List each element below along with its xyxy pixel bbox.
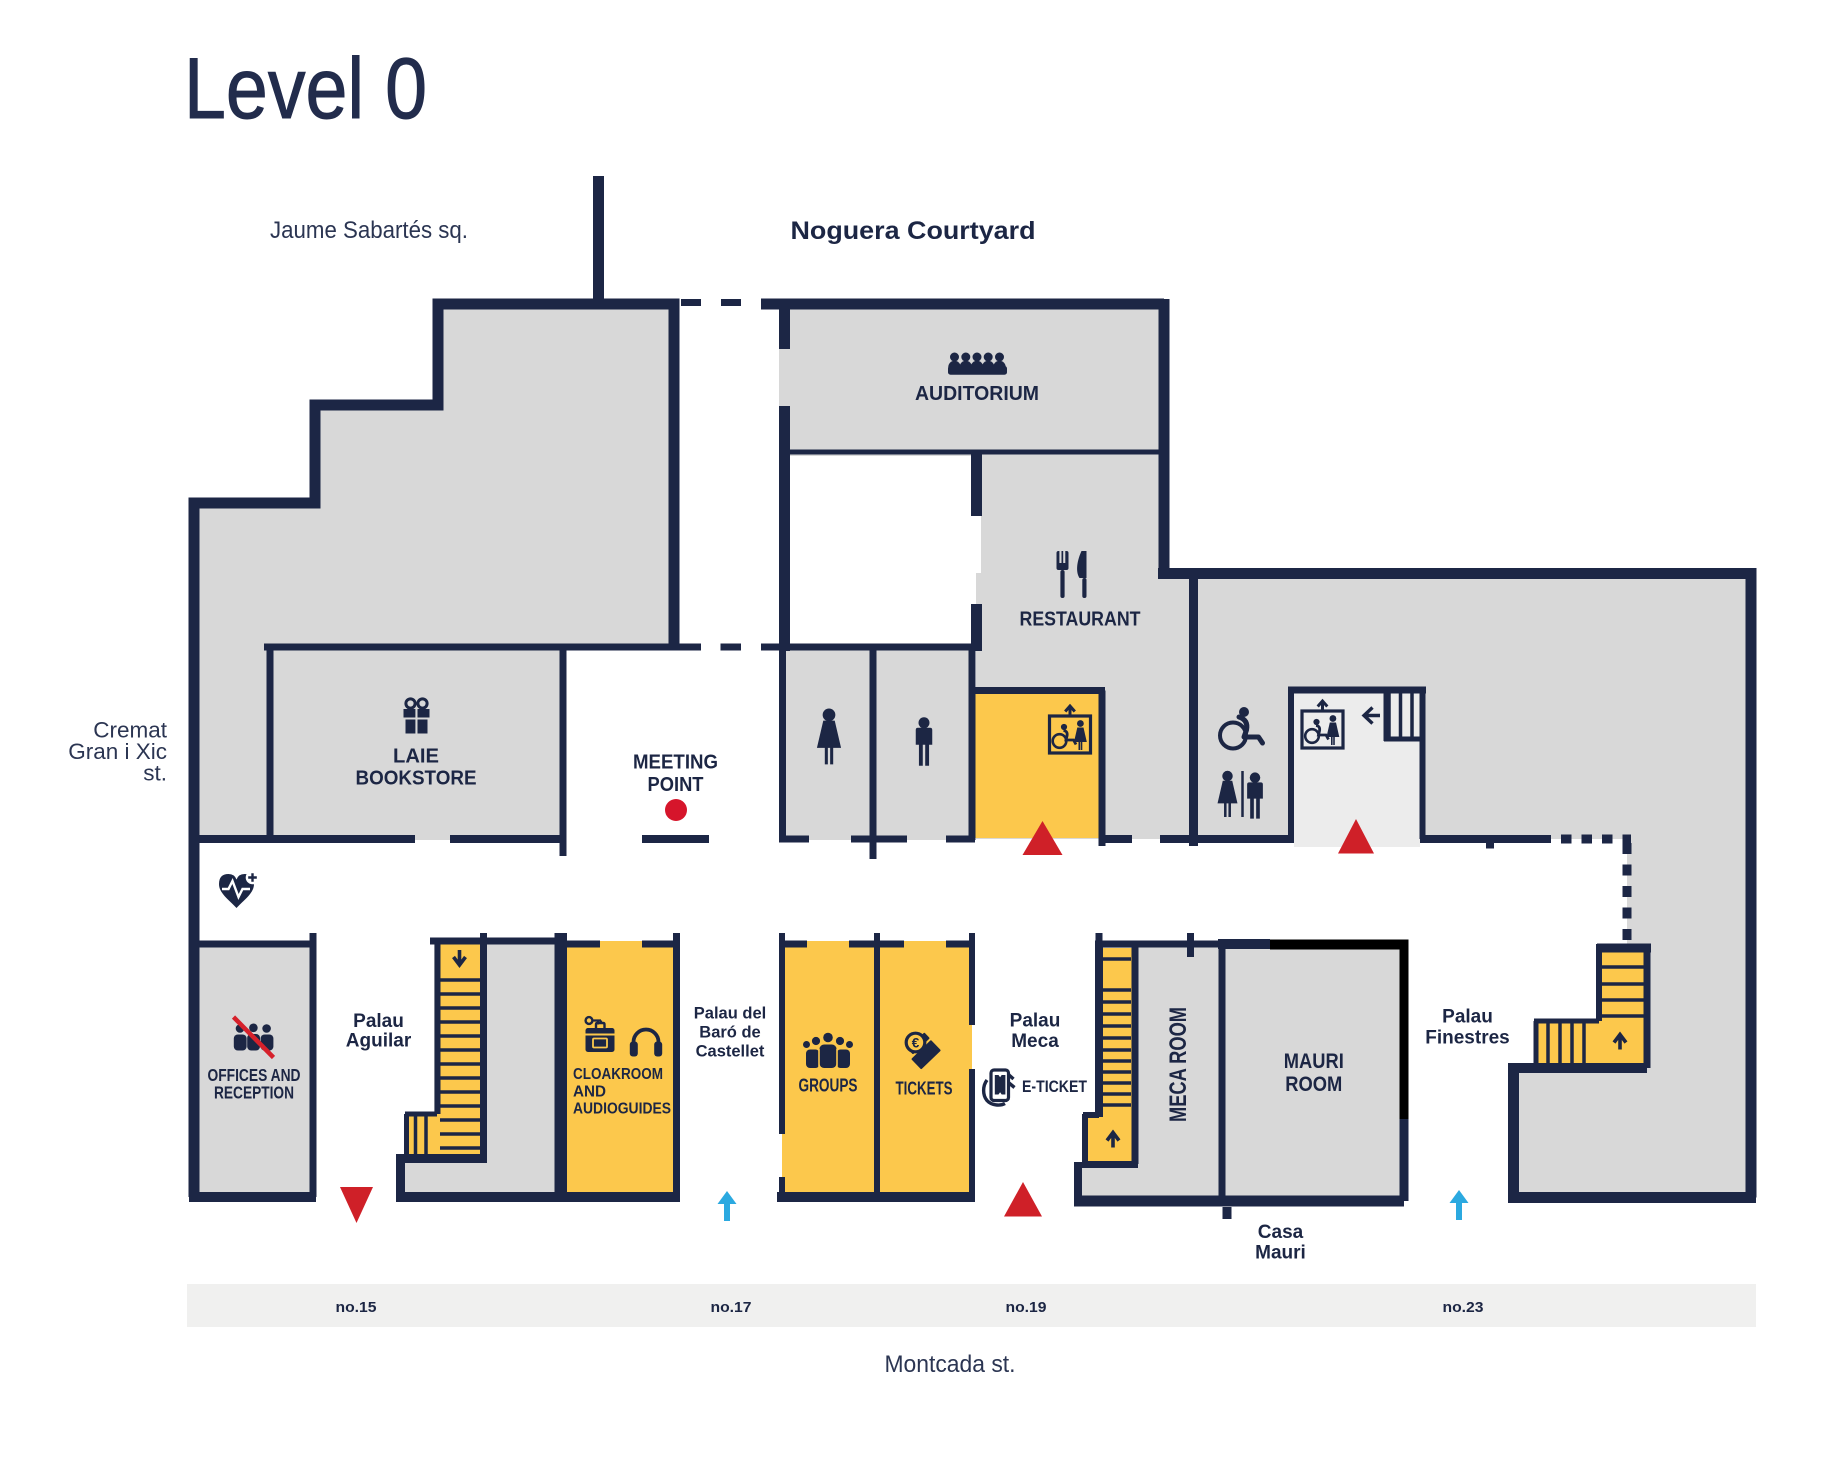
svg-text:Noguera Courtyard: Noguera Courtyard <box>791 217 1036 245</box>
svg-text:Finestres: Finestres <box>1425 1028 1509 1049</box>
svg-text:no.23: no.23 <box>1443 1300 1484 1316</box>
svg-text:Palau: Palau <box>353 1011 404 1032</box>
svg-text:LAIE: LAIE <box>393 745 439 768</box>
svg-text:Aguilar: Aguilar <box>346 1031 412 1052</box>
svg-text:Level 0: Level 0 <box>184 41 427 137</box>
svg-text:Palau: Palau <box>1010 1011 1061 1032</box>
svg-text:no.19: no.19 <box>1006 1300 1047 1316</box>
svg-text:Mauri: Mauri <box>1255 1243 1306 1264</box>
svg-text:Casa: Casa <box>1258 1222 1304 1243</box>
svg-text:GROUPS: GROUPS <box>799 1076 858 1096</box>
svg-text:AUDIOGUIDES: AUDIOGUIDES <box>573 1101 671 1118</box>
svg-text:RESTAURANT: RESTAURANT <box>1020 608 1141 631</box>
svg-text:AUDITORIUM: AUDITORIUM <box>915 382 1039 405</box>
svg-text:Montcada st.: Montcada st. <box>885 1351 1016 1378</box>
svg-text:TICKETS: TICKETS <box>896 1079 953 1099</box>
svg-text:E-TICKET: E-TICKET <box>1022 1078 1087 1096</box>
svg-text:AND: AND <box>573 1083 606 1100</box>
svg-text:BOOKSTORE: BOOKSTORE <box>356 767 477 790</box>
svg-text:MAURI: MAURI <box>1284 1050 1344 1073</box>
svg-text:ROOM: ROOM <box>1285 1073 1342 1096</box>
svg-text:no.15: no.15 <box>336 1300 377 1316</box>
svg-text:RECEPTION: RECEPTION <box>214 1083 294 1103</box>
svg-text:Jaume Sabartés sq.: Jaume Sabartés sq. <box>270 217 468 244</box>
svg-text:Castellet: Castellet <box>696 1043 765 1061</box>
svg-text:Palau del: Palau del <box>694 1005 766 1023</box>
svg-text:POINT: POINT <box>648 773 704 796</box>
svg-text:Baró de: Baró de <box>699 1024 760 1042</box>
svg-text:€: € <box>912 1036 920 1051</box>
svg-text:MECA ROOM: MECA ROOM <box>1165 1007 1192 1122</box>
svg-text:st.: st. <box>143 761 167 786</box>
svg-text:no.17: no.17 <box>711 1300 752 1316</box>
svg-text:CLOAKROOM: CLOAKROOM <box>573 1066 663 1083</box>
svg-text:MEETING: MEETING <box>633 751 718 774</box>
svg-text:Meca: Meca <box>1011 1031 1059 1052</box>
svg-text:Palau: Palau <box>1442 1007 1493 1028</box>
